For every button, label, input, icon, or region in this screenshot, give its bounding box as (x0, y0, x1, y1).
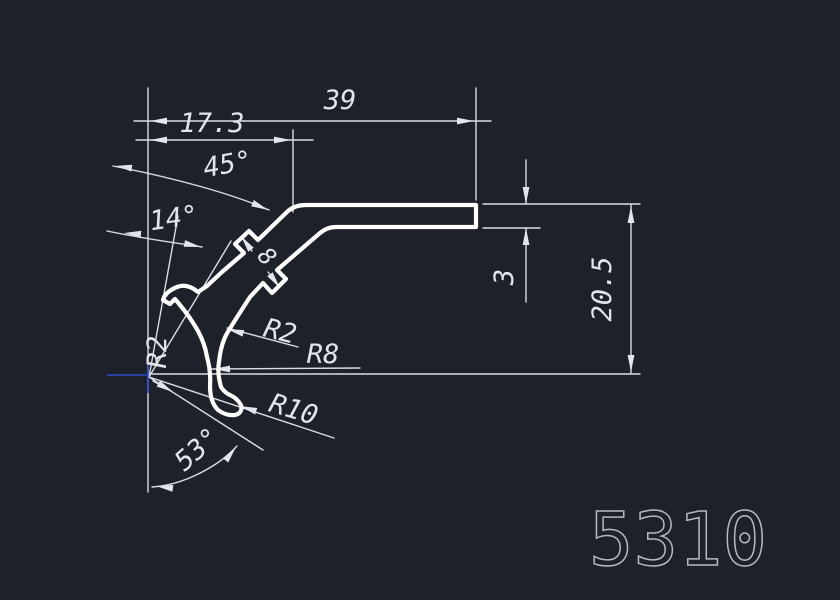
cad-drawing: 39 17.3 45° 14° 8 R2 R8 R2 R10 53° 3 20.… (0, 0, 840, 600)
arrow-39-left (150, 118, 167, 125)
dim-text-39: 39 (323, 85, 357, 116)
arrow-14-right (184, 240, 202, 250)
arrow-45-right (251, 200, 269, 213)
arrow-3-top (523, 187, 530, 204)
arrow-20-5-top (628, 206, 635, 223)
arrow-20-5-bottom (628, 355, 635, 372)
radius-text-r10: R10 (266, 388, 322, 432)
dim-text-20-5: 20.5 (587, 256, 618, 321)
angle-text-45: 45° (201, 145, 254, 184)
dim-text-3: 3 (489, 269, 520, 286)
profile-outline (163, 205, 476, 415)
dimension-lines (107, 88, 640, 492)
arrow-17-3-left (150, 137, 167, 144)
arrow-39-right (457, 118, 474, 125)
cad-drawing-canvas: 39 17.3 45° 14° 8 R2 R8 R2 R10 53° 3 20.… (0, 0, 840, 600)
angle-text-53: 53° (169, 422, 226, 477)
part-number-label: 5310 (589, 497, 767, 583)
radius-text-r8: R8 (307, 339, 340, 370)
arrow-3-bottom (523, 228, 530, 245)
angle-text-14: 14° (148, 200, 201, 237)
arrow-17-3-right (274, 137, 291, 144)
arrow-r8 (213, 366, 230, 373)
dim-text-17-3: 17.3 (179, 108, 244, 139)
radius-text-r2-left: R2 (142, 336, 173, 369)
radius-text-r2-upper: R2 (261, 313, 300, 351)
